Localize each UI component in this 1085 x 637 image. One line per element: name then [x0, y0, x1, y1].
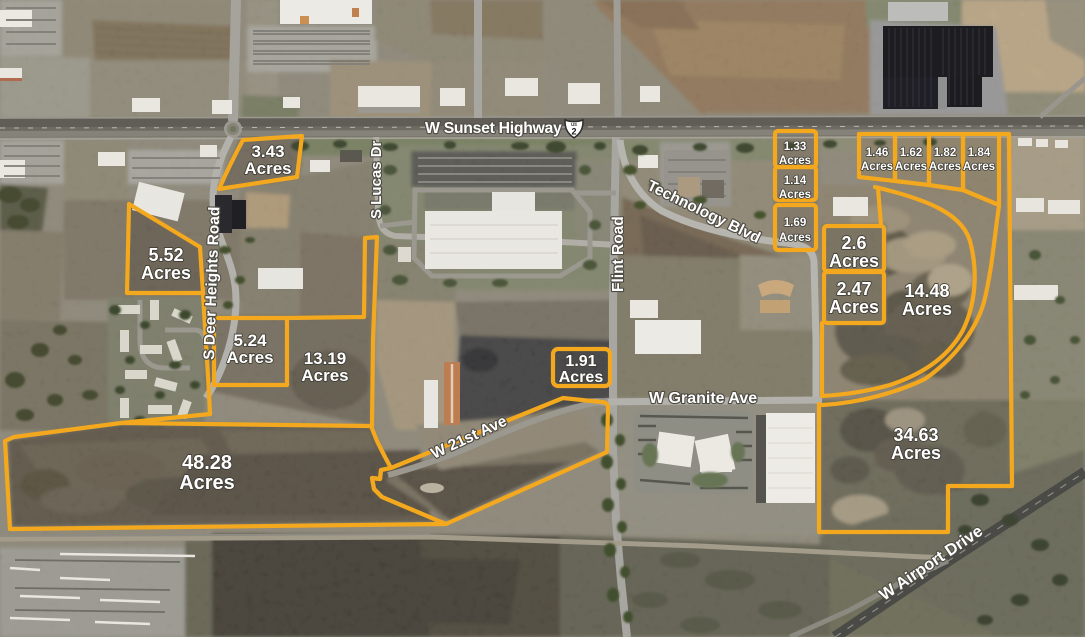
svg-text:Acres: Acres	[244, 159, 291, 178]
svg-text:Acres: Acres	[895, 160, 927, 173]
svg-text:5.52: 5.52	[148, 245, 183, 265]
svg-text:2.47: 2.47	[836, 279, 871, 299]
svg-text:W Sunset Highway: W Sunset Highway	[425, 120, 562, 137]
svg-text:Flint Road: Flint Road	[610, 216, 627, 292]
svg-text:1.82: 1.82	[934, 146, 957, 159]
svg-text:1.91: 1.91	[565, 353, 596, 370]
svg-text:1.14: 1.14	[784, 174, 807, 187]
svg-text:S Lucas Dr: S Lucas Dr	[368, 140, 385, 219]
svg-text:Acres: Acres	[829, 251, 879, 271]
svg-text:1.46: 1.46	[866, 146, 889, 159]
svg-text:Acres: Acres	[779, 231, 811, 244]
svg-text:W Granite Ave: W Granite Ave	[649, 390, 757, 407]
svg-text:Acres: Acres	[779, 188, 811, 201]
svg-text:14.48: 14.48	[904, 281, 949, 301]
svg-text:48.28: 48.28	[182, 452, 232, 474]
svg-text:Acres: Acres	[829, 297, 879, 317]
svg-text:Acres: Acres	[929, 160, 961, 173]
svg-text:1.62: 1.62	[900, 146, 923, 159]
svg-text:Acres: Acres	[861, 160, 893, 173]
svg-text:1.84: 1.84	[968, 146, 991, 159]
svg-text:Acres: Acres	[963, 160, 995, 173]
svg-text:1.33: 1.33	[784, 140, 807, 153]
svg-text:Acres: Acres	[779, 154, 811, 167]
svg-text:Acres: Acres	[226, 348, 273, 367]
svg-text:34.63: 34.63	[893, 425, 938, 445]
svg-text:Acres: Acres	[559, 369, 604, 386]
svg-text:2: 2	[571, 126, 576, 136]
svg-text:Acres: Acres	[179, 472, 235, 494]
svg-text:Acres: Acres	[891, 443, 941, 463]
svg-text:Acres: Acres	[301, 366, 348, 385]
svg-text:2.6: 2.6	[841, 233, 866, 253]
svg-text:Acres: Acres	[141, 263, 191, 283]
svg-text:1.69: 1.69	[784, 216, 807, 229]
svg-text:Acres: Acres	[902, 299, 952, 319]
